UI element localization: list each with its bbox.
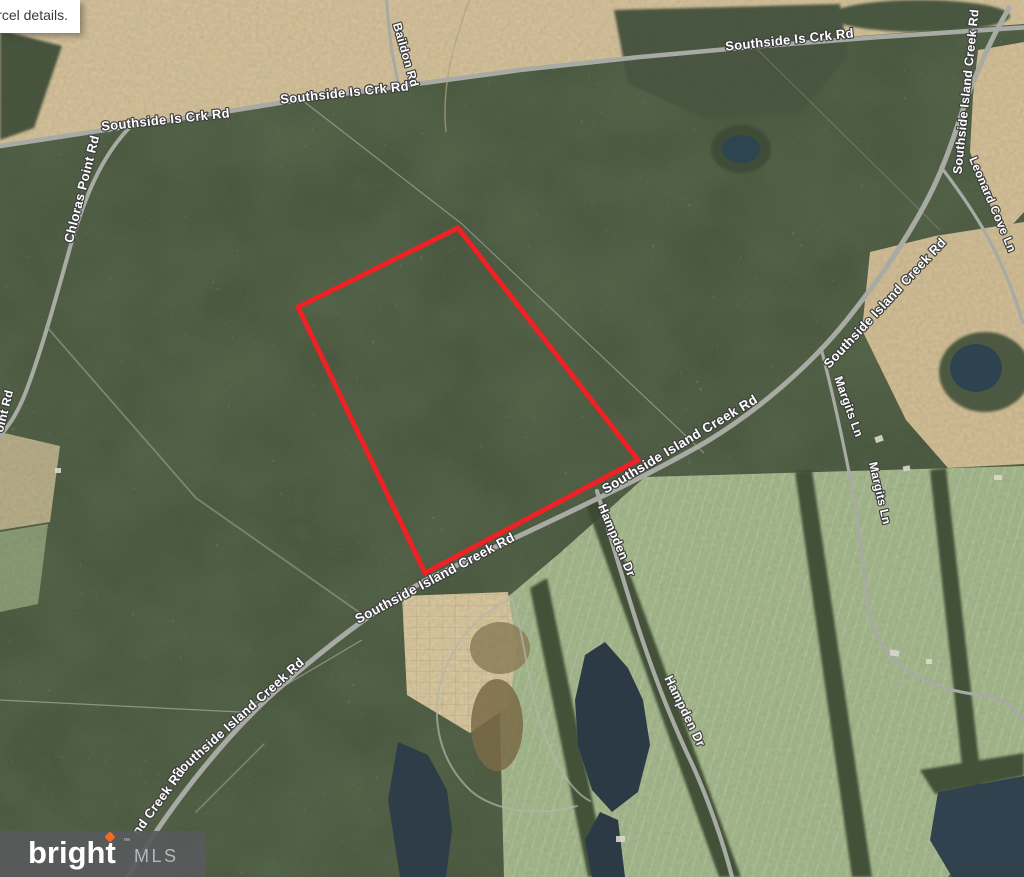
brightmls-logo: bright ™ MLS: [0, 831, 206, 877]
logo-spark-icon: [104, 831, 116, 843]
trademark-symbol: ™: [123, 838, 130, 845]
mls-map-screenshot: Southside Is Crk Rd Southside Is Crk Rd …: [0, 0, 1024, 877]
tooltip-text: arcel details.: [0, 7, 68, 23]
brightmls-wordmark: bright: [28, 833, 116, 873]
map-fields: [0, 0, 1024, 877]
map-canvas[interactable]: Southside Is Crk Rd Southside Is Crk Rd …: [0, 0, 1024, 877]
mls-wordmark: MLS: [134, 846, 179, 867]
parcel-details-tooltip: arcel details.: [0, 0, 80, 33]
